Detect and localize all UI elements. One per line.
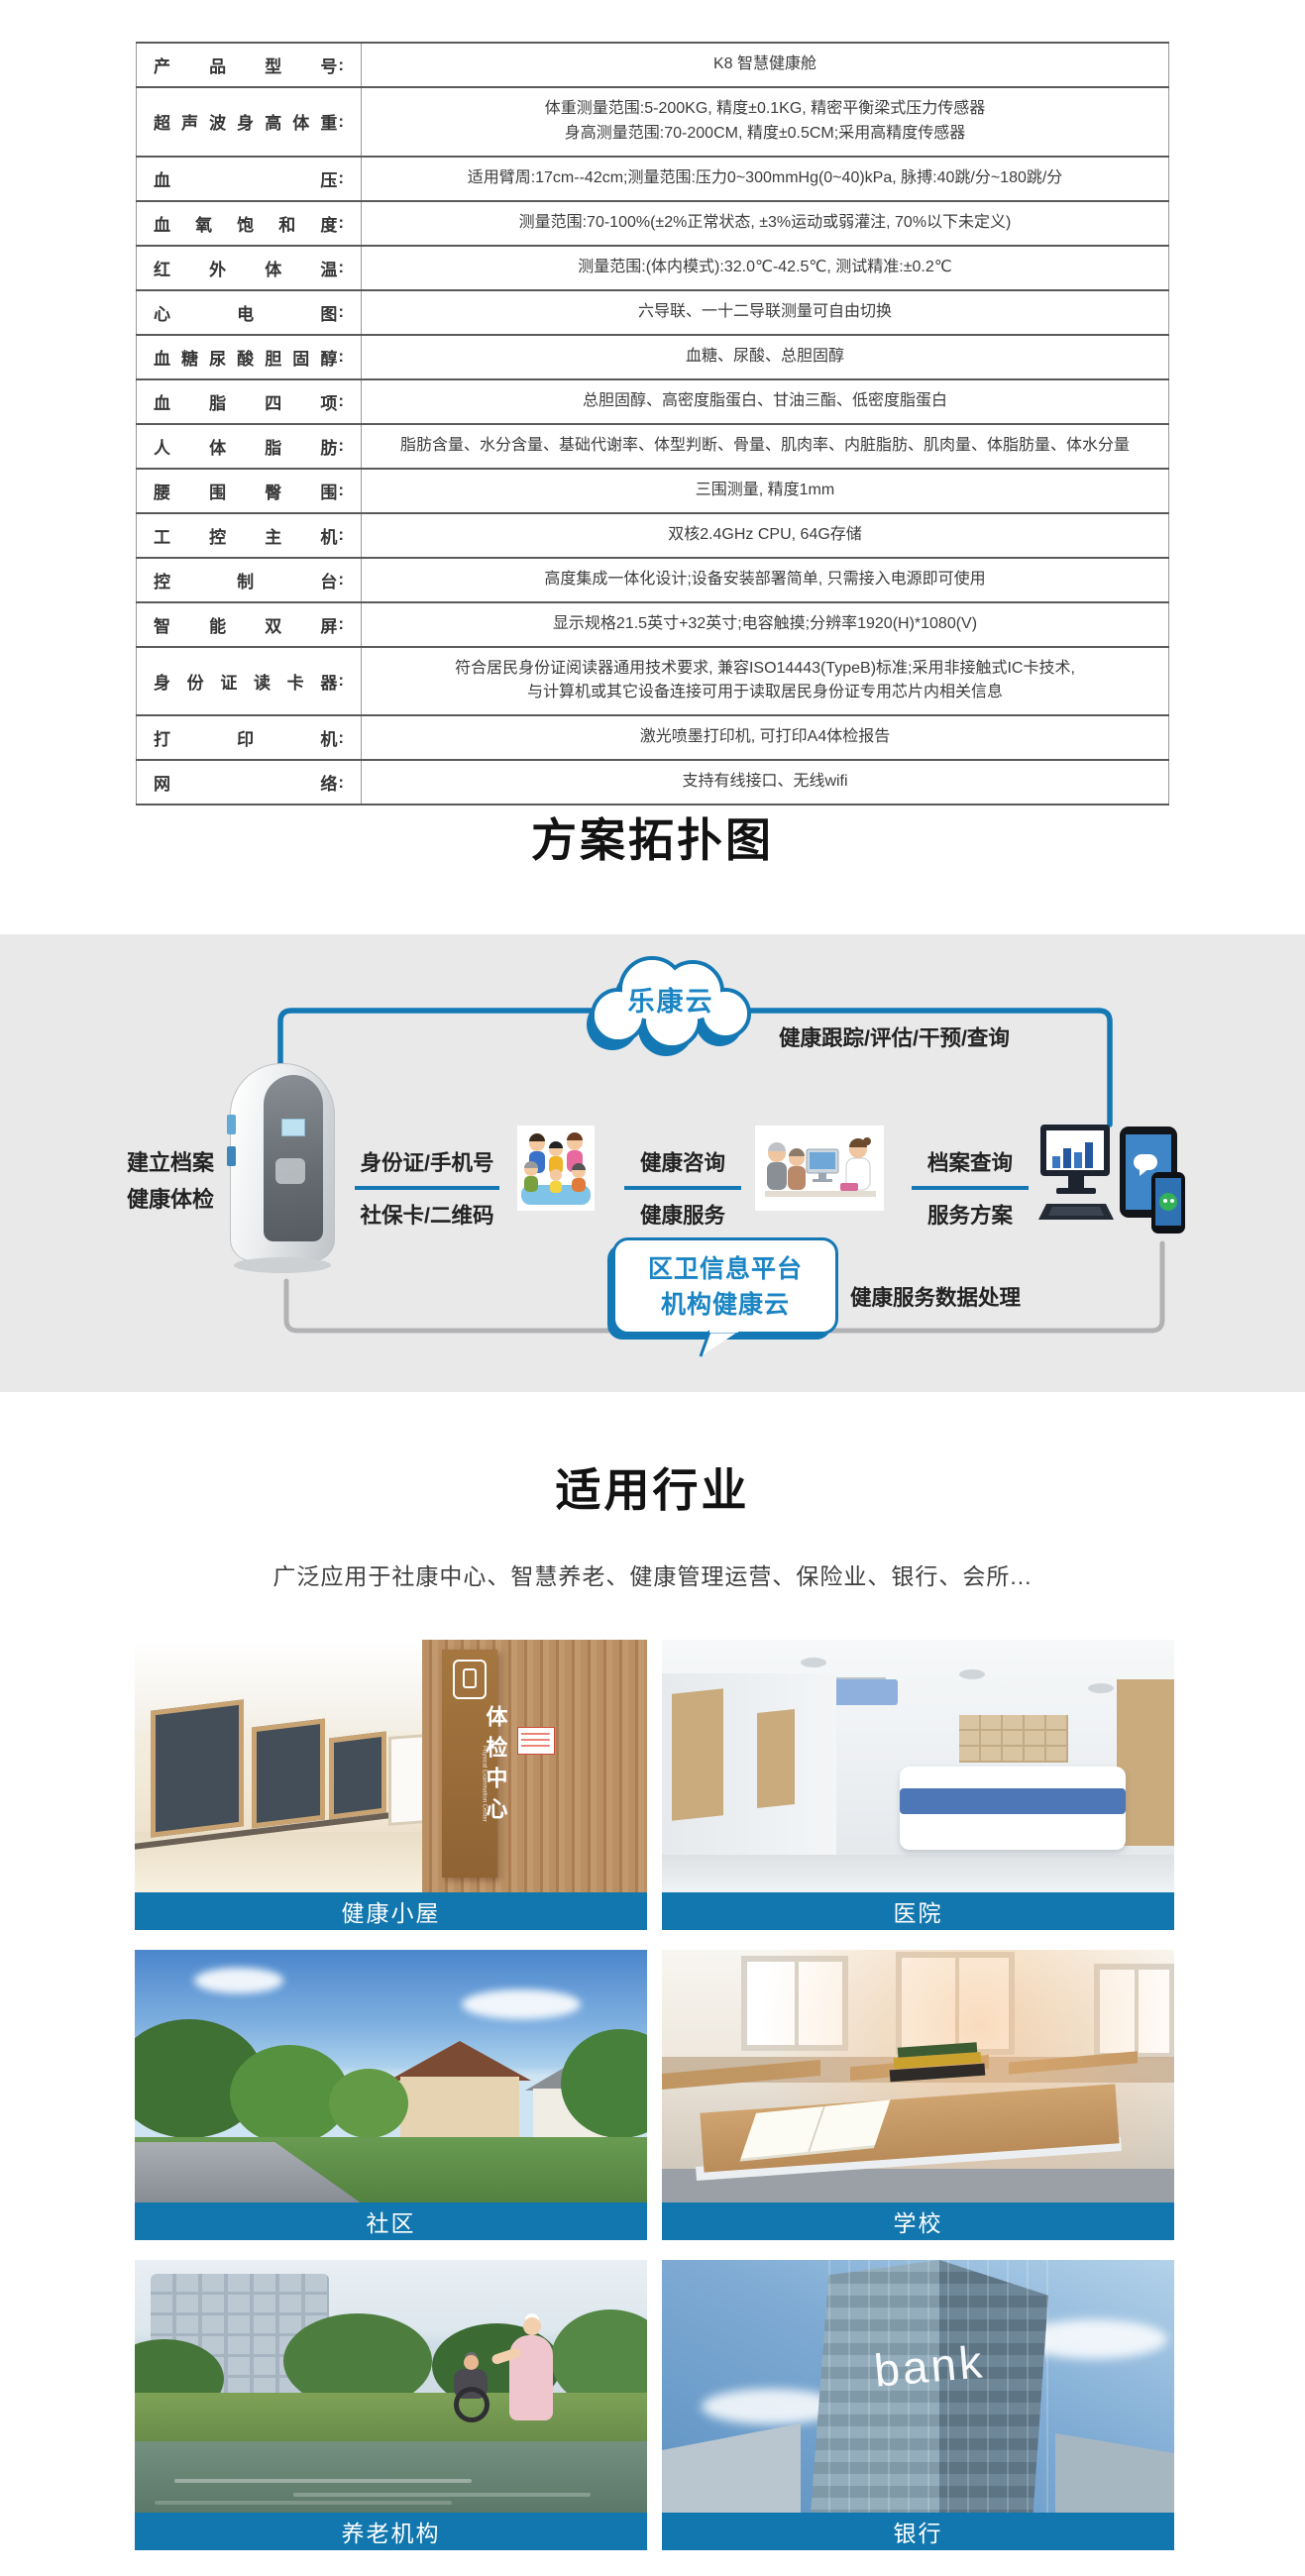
hospital-photo (662, 1640, 1174, 1892)
topology-section-title: 方案拓扑图 (0, 805, 1305, 870)
divider-line (355, 1186, 499, 1190)
industry-card-elderly-care: 养老机构 (135, 2260, 647, 2550)
card-label: 医院 (662, 1892, 1174, 1930)
spec-label-colon: : (338, 258, 344, 277)
card-label: 社区 (135, 2202, 647, 2240)
spec-label: 血氧饱和度 (154, 211, 337, 236)
device-label: 建立档案 健康体检 (115, 1144, 226, 1219)
spec-table: 产品型号:K8 智慧健康舱 超声波身高体重:体重测量范围:5-200KG, 精度… (136, 42, 1169, 805)
spec-value: 适用臂周:17cm--42cm;测量范围:压力0~300mmHg(0~40)kP… (362, 157, 1169, 201)
table-row: 打印机:激光喷墨打印机, 可打印A4体检报告 (137, 715, 1169, 760)
spec-label-colon: : (338, 391, 344, 411)
desktop-computer-icon (1038, 1123, 1114, 1237)
card-label: 学校 (662, 2202, 1174, 2240)
spec-label-colon: : (338, 570, 344, 590)
spec-value: 三围测量, 精度1mm (362, 469, 1169, 513)
divider-line (912, 1186, 1029, 1190)
table-row: 工控主机:双核2.4GHz CPU, 64G存储 (137, 513, 1169, 558)
exam-center-sign: 体检中心 Physical Examination Center (442, 1650, 497, 1878)
industry-cards: 体检中心 Physical Examination Center 健康小屋 医院 (135, 1640, 1174, 2550)
industries-section-title: 适用行业 (0, 1454, 1305, 1520)
spec-value: 测量范围:(体内模式):32.0℃-42.5℃, 测试精准:±0.2℃ (362, 246, 1169, 290)
step-consult: 健康咨询 健康服务 (622, 1146, 743, 1230)
step-archive-bottom: 服务方案 (910, 1199, 1031, 1230)
spec-label-colon: : (338, 347, 344, 367)
table-row: 控制台:高度集成一体化设计;设备安装部署简单, 只需接入电源即可使用 (137, 558, 1169, 602)
step-identify: 身份证/手机号 社保卡/二维码 (353, 1146, 501, 1230)
product-detail-page: 产品型号:K8 智慧健康舱 超声波身高体重:体重测量范围:5-200KG, 精度… (0, 0, 1305, 2576)
spec-label: 血压 (154, 166, 337, 191)
spec-value: 脂肪含量、水分含量、基础代谢率、体型判断、骨量、肌肉率、内脏脂肪、肌肉量、体脂肪… (362, 424, 1169, 469)
spec-label-colon: : (338, 168, 344, 188)
industry-card-hospital: 医院 (662, 1640, 1174, 1930)
table-row: 血压:适用臂周:17cm--42cm;测量范围:压力0~300mmHg(0~40… (137, 157, 1169, 201)
table-row: 智能双屏:显示规格21.5英寸+32英寸;电容触摸;分辨率1920(H)*108… (137, 602, 1169, 647)
spec-label: 工控主机 (154, 523, 337, 548)
spec-label: 身份证读卡器 (154, 669, 337, 694)
spec-value: 支持有线接口、无线wifi (362, 760, 1169, 805)
platform-bubble-line2: 机构健康云 (615, 1287, 835, 1323)
spec-label-colon: : (338, 773, 344, 793)
spec-label: 人体脂肪 (154, 434, 337, 459)
elderly-care-photo (135, 2260, 647, 2513)
health-cabin-photo: 体检中心 Physical Examination Center (135, 1640, 647, 1892)
spec-label: 腰围臀围 (154, 479, 337, 503)
step-identify-top: 身份证/手机号 (353, 1146, 501, 1177)
spec-label-colon: : (338, 614, 344, 634)
spec-value: 总胆固醇、高密度脂蛋白、甘油三酯、低密度脂蛋白 (362, 379, 1169, 424)
family-illustration (517, 1126, 595, 1211)
bubble-tail (697, 1330, 740, 1359)
spec-label: 血脂四项 (154, 389, 337, 414)
table-row: 超声波身高体重:体重测量范围:5-200KG, 精度±0.1KG, 精密平衡梁式… (137, 87, 1169, 157)
spec-value: 六导联、一十二导联测量可自由切换 (362, 290, 1169, 335)
table-row: 产品型号:K8 智慧健康舱 (137, 43, 1169, 87)
step-archive-top: 档案查询 (910, 1146, 1031, 1177)
spec-label: 产品型号 (154, 53, 337, 77)
industry-card-community: 社区 (135, 1950, 647, 2240)
spec-value: 双核2.4GHz CPU, 64G存储 (362, 513, 1169, 558)
spec-value: 测量范围:70-100%(±2%正常状态, ±3%运动或弱灌注, 70%以下未定… (362, 201, 1169, 246)
table-row: 血氧饱和度:测量范围:70-100%(±2%正常状态, ±3%运动或弱灌注, 7… (137, 201, 1169, 246)
spec-value: 激光喷墨打印机, 可打印A4体检报告 (362, 715, 1169, 760)
spec-value: K8 智慧健康舱 (362, 43, 1169, 87)
spec-label-colon: : (338, 55, 344, 75)
school-photo (662, 1950, 1174, 2202)
consultation-illustration (755, 1126, 884, 1211)
industry-card-bank: bank 银行 (662, 2260, 1174, 2550)
bank-photo: bank (662, 2260, 1174, 2513)
step-consult-top: 健康咨询 (622, 1146, 743, 1177)
divider-line (624, 1186, 741, 1190)
table-row: 身份证读卡器:符合居民身份证阅读器通用技术要求, 兼容ISO14443(Type… (137, 647, 1169, 716)
spec-label-colon: : (338, 481, 344, 500)
spec-label-colon: : (338, 728, 344, 748)
table-row: 血糖尿酸胆固醇:血糖、尿酸、总胆固醇 (137, 335, 1169, 379)
industries-subtitle: 广泛应用于社康中心、智慧养老、健康管理运营、保险业、银行、会所... (0, 1557, 1305, 1591)
community-photo (135, 1950, 647, 2202)
sign-subtext: Physical Examination Center (482, 1709, 488, 1858)
cloud-icon: 乐康云 (581, 944, 761, 1063)
spec-value: 高度集成一体化设计;设备安装部署简单, 只需接入电源即可使用 (362, 558, 1169, 602)
platform-bubble: 区卫信息平台 机构健康云 (612, 1237, 838, 1335)
table-row: 人体脂肪:脂肪含量、水分含量、基础代谢率、体型判断、骨量、肌肉率、内脏脂肪、肌肉… (137, 424, 1169, 469)
spec-label: 打印机 (154, 725, 337, 750)
cloud-label: 乐康云 (581, 944, 761, 1063)
table-row: 网络:支持有线接口、无线wifi (137, 760, 1169, 805)
spec-label-colon: : (338, 671, 344, 691)
table-row: 血脂四项:总胆固醇、高密度脂蛋白、甘油三酯、低密度脂蛋白 (137, 379, 1169, 424)
spec-label-colon: : (338, 525, 344, 545)
spec-label: 超声波身高体重 (154, 109, 337, 134)
spec-label: 网络 (154, 770, 337, 795)
step-archive: 档案查询 服务方案 (910, 1146, 1031, 1230)
spec-value: 血糖、尿酸、总胆固醇 (362, 335, 1169, 379)
topology-diagram: 乐康云 健康跟踪/评估/干预/查询 建立档案 健康体检 身份证/手机号 社保卡/… (0, 934, 1305, 1392)
spec-label: 红外体温 (154, 256, 337, 280)
data-processing-label: 健康服务数据处理 (850, 1281, 1021, 1312)
cloud-tracking-label: 健康跟踪/评估/干预/查询 (779, 1021, 1010, 1052)
spec-label-colon: : (338, 436, 344, 456)
table-row: 心电图:六导联、一十二导联测量可自由切换 (137, 290, 1169, 335)
spec-label: 智能双屏 (154, 612, 337, 637)
table-row: 红外体温:测量范围:(体内模式):32.0℃-42.5℃, 测试精准:±0.2℃ (137, 246, 1169, 290)
card-label: 银行 (662, 2513, 1174, 2550)
table-row: 腰围臀围:三围测量, 精度1mm (137, 469, 1169, 513)
spec-label: 血糖尿酸胆固醇 (154, 345, 337, 370)
health-pod-device-icon (230, 1063, 337, 1267)
spec-value: 符合居民身份证阅读器通用技术要求, 兼容ISO14443(TypeB)标准;采用… (362, 647, 1169, 716)
spec-label: 控制台 (154, 568, 337, 592)
card-label: 健康小屋 (135, 1892, 647, 1930)
step-consult-bottom: 健康服务 (622, 1199, 743, 1230)
step-identify-bottom: 社保卡/二维码 (353, 1199, 501, 1230)
spec-label: 心电图 (154, 300, 337, 325)
industry-card-health-cabin: 体检中心 Physical Examination Center 健康小屋 (135, 1640, 647, 1930)
platform-bubble-line1: 区卫信息平台 (615, 1251, 835, 1287)
spec-value: 体重测量范围:5-200KG, 精度±0.1KG, 精密平衡梁式压力传感器 身高… (362, 87, 1169, 157)
industry-card-school: 学校 (662, 1950, 1174, 2240)
notice-poster (517, 1727, 555, 1755)
spec-label-colon: : (338, 112, 344, 132)
spec-label-colon: : (338, 213, 344, 233)
tablet-phone-icon (1116, 1125, 1189, 1237)
spec-label-colon: : (338, 302, 344, 322)
spec-value: 显示规格21.5英寸+32英寸;电容触摸;分辨率1920(H)*1080(V) (362, 602, 1169, 647)
card-label: 养老机构 (135, 2513, 647, 2550)
badge-icon (453, 1660, 487, 1699)
